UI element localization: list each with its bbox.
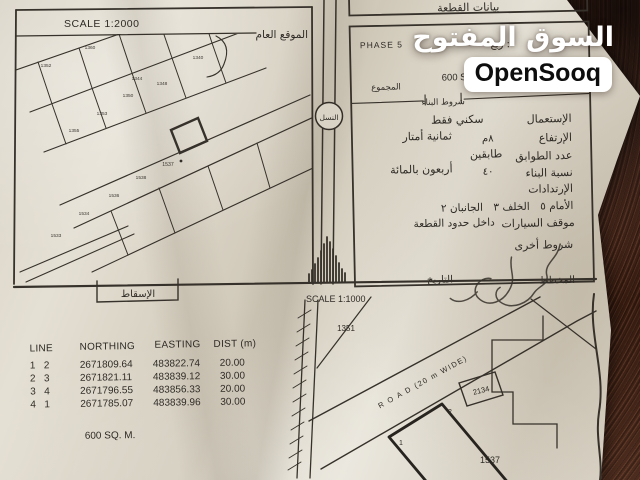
- setbacks-detail: الأمام ٥ الخلف ٣ الجانبان ٢: [441, 199, 574, 215]
- plot-number: 1538: [136, 175, 147, 181]
- overview-map: SCALE 1:2000 الموقع العام 1352 1360: [14, 0, 330, 284]
- road-line: [321, 0, 324, 284]
- height-value: ثمانية أمتار: [401, 128, 452, 143]
- coordinates-table: LINE NORTHING EASTING DIST (m) 1 2 26718…: [29, 338, 257, 442]
- east-plot-number: 2134: [472, 384, 490, 397]
- opensooq-arabic-logo: السوق المفتوح: [412, 22, 614, 53]
- height-label: الإرتفاع: [539, 131, 572, 145]
- stepped-boundary: [492, 316, 557, 448]
- photo-of-survey-document: SCALE 1:2000 الموقع العام 1352 1360: [0, 0, 640, 480]
- cell: 30.00: [220, 397, 246, 408]
- conditions-rule: [351, 90, 590, 106]
- floors-label: عدد الطوابق: [515, 149, 572, 164]
- middle-road-strip: النسل: [309, 0, 345, 284]
- road-name-label: النسل: [319, 113, 338, 122]
- overview-scale-label: SCALE 1:2000: [64, 18, 139, 30]
- cell: 3: [30, 386, 36, 397]
- cell: 20.00: [220, 358, 246, 369]
- cell: 1: [44, 399, 50, 410]
- parcel-grid-lines: [16, 0, 330, 282]
- cell: 2: [44, 360, 50, 371]
- cell: 1: [30, 360, 36, 371]
- subject-plot-number-overview: 1537: [162, 162, 174, 168]
- road-lower-edge: [321, 311, 596, 469]
- plot-area-label: 600 SQ. M.: [85, 430, 136, 442]
- table-row: 4 1 2671785.07 483839.96 30.00: [30, 397, 246, 411]
- plot-number: 1355: [69, 128, 80, 134]
- table-row: 3 4 2671796.55 483856.33 20.00: [30, 384, 246, 398]
- parking-value: داخل حدود القطعة: [413, 216, 495, 230]
- col-header-easting: EASTING: [154, 339, 200, 351]
- detail-scale-label: SCALE 1:1000: [306, 294, 366, 304]
- floors-value: طابقين: [470, 147, 503, 161]
- ratio-value: أربعون بالمائة: [390, 161, 453, 176]
- plot-number: 1344: [132, 76, 143, 82]
- overview-box-top: [16, 7, 312, 10]
- plot-number: 1352: [41, 63, 52, 69]
- cell: 2671809.64: [80, 359, 133, 371]
- plot-1351-boundary: [317, 297, 371, 368]
- plot-number: 1348: [157, 81, 168, 87]
- conditions-title: شروط البناء: [422, 97, 465, 108]
- marked-plot-dot: [180, 160, 183, 163]
- road-line: [333, 0, 336, 284]
- road-label: R O A D (20 m WIDE): [376, 353, 469, 410]
- hatch-skyline-symbol: [309, 237, 345, 282]
- coordinates-table-header: LINE NORTHING EASTING DIST (m): [29, 338, 256, 354]
- opensooq-latin-logo: OpenSooq: [464, 57, 612, 92]
- cell: 483856.33: [153, 384, 201, 396]
- subject-plot-number: 1537: [480, 455, 500, 465]
- cell: 2671785.07: [80, 398, 133, 410]
- table-row: 1 2 2671809.64 483822.74 20.00: [30, 358, 246, 372]
- usage-label: الإستعمال: [527, 112, 572, 126]
- north-plot-number: 1351: [337, 324, 355, 333]
- overview-title: الموقع العام: [256, 29, 308, 41]
- plot-number: 1353: [97, 111, 108, 117]
- col-header-dist: DIST (m): [213, 338, 256, 350]
- document-right-border: [593, 294, 601, 480]
- other-conditions-label: شروط أخرى: [514, 237, 573, 252]
- band-edge: [44, 68, 266, 152]
- plot-number: 1340: [193, 55, 204, 61]
- parking-label: موقف السيارات: [501, 216, 575, 231]
- col-header-northing: NORTHING: [79, 341, 135, 353]
- road-upper-edge: [309, 297, 540, 421]
- total-field: المجموع: [371, 82, 401, 93]
- cell: 483839.96: [153, 397, 201, 409]
- phase-label: PHASE 5: [360, 39, 403, 50]
- overview-box-right: [312, 7, 313, 284]
- cell: 483822.74: [153, 358, 201, 370]
- table-row: 2 3 2671821.11 483839.12 30.00: [30, 371, 246, 385]
- height-number: ٨م: [482, 133, 494, 144]
- road-hatch-ticks: [288, 310, 311, 470]
- cell: 20.00: [220, 384, 246, 395]
- ratio-number: ٤٠: [483, 167, 494, 178]
- cell: 4: [44, 386, 50, 397]
- panel-header-title: بيانات القطعة: [437, 0, 499, 14]
- corner-label-1: 1: [399, 440, 403, 447]
- road-label-group: R O A D (20 m WIDE): [376, 353, 469, 410]
- usage-value: سكني فقط: [431, 113, 484, 127]
- corner-label-2: 2: [448, 409, 452, 416]
- plot-number: 1536: [109, 193, 120, 199]
- projection-tab: الإسقاط: [97, 279, 178, 302]
- projection-tab-label: الإسقاط: [121, 289, 155, 300]
- cell: 4: [30, 399, 36, 410]
- ratio-label: نسبة البناء: [525, 166, 572, 180]
- col-header-line: LINE: [29, 343, 53, 354]
- marked-plot-outline: [171, 118, 207, 153]
- overview-box-left: [14, 10, 16, 284]
- plot-number: 1534: [79, 211, 90, 217]
- road2-edges: [20, 226, 134, 282]
- cell: 2: [30, 373, 36, 384]
- plot-number: 1360: [85, 45, 96, 51]
- setbacks-label: الإرتدادات: [528, 182, 573, 196]
- detail-map: SCALE 1:1000 1351 R O A D (20 m WIDE) 21…: [288, 294, 601, 480]
- cell: 3: [44, 373, 50, 384]
- cell: 2671796.55: [80, 385, 133, 397]
- plot-number: 1350: [123, 93, 134, 99]
- cell: 30.00: [220, 371, 246, 382]
- cell: 483839.12: [153, 371, 201, 383]
- plot-number: 1533: [51, 233, 62, 239]
- cell: 2671821.11: [80, 372, 133, 384]
- overview-header-rule: [16, 33, 256, 36]
